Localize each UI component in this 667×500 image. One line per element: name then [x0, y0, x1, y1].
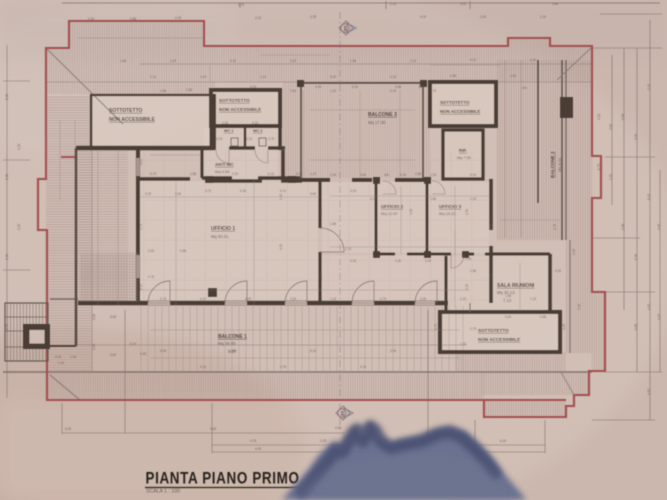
svg-text:SOTTOTETTO: SOTTOTETTO	[109, 108, 143, 114]
svg-text:0.30: 0.30	[634, 254, 638, 260]
svg-text:4.10: 4.10	[200, 365, 206, 369]
svg-text:2.10: 2.10	[345, 247, 351, 251]
svg-text:5.30: 5.30	[530, 58, 536, 62]
svg-text:3.25: 3.25	[350, 259, 356, 263]
svg-text:3.25: 3.25	[145, 192, 151, 196]
svg-text:4.45: 4.45	[647, 389, 651, 395]
svg-text:1.86: 1.86	[552, 2, 558, 6]
svg-text:2.10: 2.10	[410, 59, 416, 63]
svg-text:WC 2: WC 2	[253, 129, 263, 133]
svg-text:1.86: 1.86	[430, 197, 436, 201]
svg-text:1.06: 1.06	[70, 355, 76, 359]
svg-text:0.30: 0.30	[88, 17, 94, 21]
svg-text:4.10: 4.10	[252, 121, 258, 125]
svg-text:4.45: 4.45	[657, 314, 661, 320]
svg-text:0.88: 0.88	[395, 85, 401, 89]
svg-text:4.45: 4.45	[562, 324, 566, 330]
svg-text:4.10: 4.10	[420, 15, 426, 19]
svg-text:UFFICIO 1: UFFICIO 1	[211, 226, 235, 232]
svg-text:NON ACCESSIBILE: NON ACCESSIBILE	[478, 337, 520, 342]
svg-text:5.30: 5.30	[352, 85, 358, 89]
svg-text:0.75: 0.75	[280, 365, 286, 369]
svg-text:4.45: 4.45	[210, 427, 216, 431]
svg-text:3.60: 3.60	[310, 192, 316, 196]
svg-text:1.50: 1.50	[609, 174, 613, 180]
svg-text:1.15: 1.15	[330, 297, 336, 301]
svg-text:1.50: 1.50	[5, 254, 9, 260]
svg-text:3.60: 3.60	[505, 315, 511, 319]
svg-text:WC 1: WC 1	[224, 129, 234, 133]
svg-text:0.88: 0.88	[621, 114, 625, 120]
svg-text:0.30: 0.30	[58, 361, 64, 365]
svg-text:0.30: 0.30	[148, 249, 154, 253]
svg-text:2.75: 2.75	[268, 137, 274, 141]
svg-text:3.25: 3.25	[290, 297, 296, 301]
svg-text:1.86: 1.86	[160, 89, 166, 93]
svg-text:2.10: 2.10	[390, 2, 396, 6]
svg-text:0.88: 0.88	[634, 324, 638, 330]
svg-text:3.25: 3.25	[245, 297, 251, 301]
svg-text:3.60: 3.60	[360, 173, 366, 177]
svg-text:0.30: 0.30	[395, 259, 401, 263]
svg-text:3.60: 3.60	[510, 74, 516, 78]
svg-text:1.15: 1.15	[530, 297, 536, 301]
svg-text:4A: 4A	[522, 85, 527, 90]
svg-text:3.60: 3.60	[290, 89, 296, 93]
svg-text:BALCONE 2: BALCONE 2	[550, 151, 555, 178]
svg-text:SOTTOTETTO: SOTTOTETTO	[478, 328, 509, 333]
svg-text:Mq 34.00: Mq 34.00	[218, 341, 236, 346]
svg-text:4.10: 4.10	[470, 58, 476, 62]
svg-text:2.10: 2.10	[390, 75, 396, 79]
svg-text:0.75: 0.75	[160, 297, 166, 301]
svg-text:4.10: 4.10	[489, 274, 493, 280]
svg-text:3.25: 3.25	[465, 284, 469, 290]
svg-text:2.10: 2.10	[577, 304, 581, 310]
svg-text:3.60: 3.60	[609, 124, 613, 130]
svg-text:5.30: 5.30	[330, 75, 336, 79]
svg-text:2.00: 2.00	[92, 314, 96, 320]
svg-text:5.30: 5.30	[65, 427, 71, 431]
svg-text:SALA RIUNIONI: SALA RIUNIONI	[497, 283, 535, 289]
svg-text:5.30: 5.30	[230, 59, 236, 63]
svg-text:0.75: 0.75	[148, 275, 154, 279]
svg-text:1.86: 1.86	[350, 59, 356, 63]
svg-text:3.60: 3.60	[110, 353, 116, 357]
svg-text:RIP.: RIP.	[459, 148, 467, 153]
svg-text:1.20: 1.20	[279, 194, 283, 200]
svg-text:1: 1	[340, 411, 344, 418]
svg-text:1.20: 1.20	[310, 172, 316, 176]
svg-text:0.75: 0.75	[205, 189, 211, 193]
svg-text:4.45: 4.45	[335, 426, 341, 430]
svg-text:NON ACCESSIBILE: NON ACCESSIBILE	[109, 117, 156, 123]
svg-text:1.86: 1.86	[621, 224, 625, 230]
svg-text:2.00: 2.00	[555, 269, 561, 273]
svg-text:6.10: 6.10	[130, 342, 136, 346]
svg-text:1.86: 1.86	[120, 59, 126, 63]
svg-text:1.15: 1.15	[17, 224, 21, 230]
svg-text:4A: 4A	[384, 172, 389, 177]
svg-text:1.86: 1.86	[330, 222, 336, 226]
svg-text:6.10: 6.10	[647, 194, 651, 200]
svg-text:2.00: 2.00	[634, 134, 638, 140]
svg-text:5.30: 5.30	[5, 94, 9, 100]
svg-text:2.75: 2.75	[430, 89, 436, 93]
svg-text:SOTTOTETTO: SOTTOTETTO	[219, 98, 250, 103]
svg-text:PIANTA PIANO PRIMO: PIANTA PIANO PRIMO	[146, 469, 300, 488]
svg-text:2.10: 2.10	[647, 84, 651, 90]
svg-text:1.86: 1.86	[190, 172, 196, 176]
svg-text:2.75: 2.75	[434, 324, 438, 330]
svg-text:3.25: 3.25	[170, 59, 176, 63]
svg-text:3.25: 3.25	[216, 137, 222, 141]
svg-text:0.88: 0.88	[130, 17, 136, 21]
svg-text:UFFICIO 2: UFFICIO 2	[381, 204, 404, 209]
svg-text:4.10: 4.10	[370, 197, 376, 201]
svg-text:0.88: 0.88	[415, 172, 421, 176]
svg-text:Mq 12.97: Mq 12.97	[381, 211, 398, 216]
svg-text:3.60: 3.60	[110, 315, 116, 319]
svg-text:3.60: 3.60	[175, 192, 181, 196]
svg-text:ANTI WC: ANTI WC	[215, 162, 235, 167]
svg-text:6.10: 6.10	[296, 172, 302, 176]
svg-text:Mq 8.01: Mq 8.01	[557, 157, 562, 172]
svg-text:1.50: 1.50	[92, 344, 96, 350]
svg-text:3.25: 3.25	[350, 189, 356, 193]
svg-text:5.30: 5.30	[400, 173, 406, 177]
svg-text:1.86: 1.86	[505, 294, 511, 298]
svg-text:0.88: 0.88	[540, 315, 546, 319]
svg-text:4.45: 4.45	[647, 304, 651, 310]
svg-text:2.75: 2.75	[139, 224, 143, 230]
svg-text:0.30: 0.30	[319, 209, 323, 215]
svg-text:0.30: 0.30	[240, 189, 246, 193]
svg-text:2.00: 2.00	[222, 121, 228, 125]
svg-text:6.10: 6.10	[310, 349, 316, 353]
svg-text:4.05: 4.05	[55, 355, 61, 359]
svg-text:2.10: 2.10	[255, 16, 261, 20]
svg-text:Mq 7.06: Mq 7.06	[457, 156, 471, 160]
svg-text:2.10: 2.10	[150, 75, 156, 79]
svg-text:4.45: 4.45	[315, 85, 321, 89]
svg-text:4.10: 4.10	[390, 89, 396, 93]
svg-text:1.20: 1.20	[17, 144, 21, 150]
svg-text:4.10: 4.10	[409, 209, 413, 215]
svg-text:0.75: 0.75	[250, 439, 256, 443]
svg-text:Mq 4.00: Mq 4.00	[215, 169, 230, 174]
svg-text:4.45: 4.45	[140, 352, 146, 356]
svg-text:1.86: 1.86	[470, 269, 476, 273]
svg-text:0.88: 0.88	[450, 74, 456, 78]
svg-text:3.25: 3.25	[290, 59, 296, 63]
svg-text:Mq 16.22: Mq 16.22	[439, 211, 456, 216]
svg-text:0.88: 0.88	[180, 249, 186, 253]
svg-text:3.25: 3.25	[310, 15, 316, 19]
svg-text:0.75: 0.75	[5, 324, 9, 330]
svg-text:2.75: 2.75	[553, 224, 557, 230]
svg-text:2.00: 2.00	[465, 257, 471, 261]
svg-text:0.75: 0.75	[150, 172, 156, 176]
svg-text:2.00: 2.00	[330, 173, 336, 177]
svg-text:2.10: 2.10	[260, 75, 266, 79]
svg-text:6.10: 6.10	[280, 189, 286, 193]
svg-text:BALCONE 3: BALCONE 3	[368, 112, 397, 118]
svg-text:3.25: 3.25	[418, 85, 424, 89]
svg-text:2.00: 2.00	[390, 349, 396, 353]
svg-text:7.10: 7.10	[503, 298, 512, 303]
svg-text:Mq 50.01: Mq 50.01	[211, 234, 229, 239]
svg-text:2.00: 2.00	[480, 15, 486, 19]
svg-text:1.50: 1.50	[230, 349, 236, 353]
svg-text:0.75: 0.75	[597, 164, 601, 170]
svg-text:2.10: 2.10	[360, 365, 366, 369]
svg-text:4.45: 4.45	[200, 75, 206, 79]
svg-text:0.88: 0.88	[186, 88, 192, 92]
svg-text:4.10: 4.10	[279, 244, 283, 250]
svg-text:6.10: 6.10	[139, 284, 143, 290]
svg-text:6.10: 6.10	[200, 297, 206, 301]
svg-text:4.10: 4.10	[250, 85, 256, 89]
svg-text:3.25: 3.25	[320, 439, 326, 443]
svg-text:NON ACCESSIBILE: NON ACCESSIBILE	[219, 107, 261, 112]
svg-text:3.25: 3.25	[460, 2, 466, 6]
svg-text:2.00: 2.00	[160, 349, 166, 353]
svg-text:5.30: 5.30	[5, 174, 9, 180]
svg-text:Mq 17.30: Mq 17.30	[368, 120, 386, 125]
svg-text:1: 1	[343, 26, 347, 33]
svg-text:SOTTOTETTO: SOTTOTETTO	[440, 100, 470, 105]
svg-text:0.75: 0.75	[380, 297, 386, 301]
svg-text:4.10: 4.10	[597, 114, 601, 120]
svg-text:0.30: 0.30	[425, 259, 431, 263]
svg-text:2.10: 2.10	[246, 137, 252, 141]
svg-text:SCALA 1 : 100: SCALA 1 : 100	[146, 489, 180, 495]
svg-text:BALCONE 1: BALCONE 1	[218, 334, 247, 340]
svg-text:6.10: 6.10	[500, 439, 506, 443]
svg-text:2.10: 2.10	[319, 274, 323, 280]
svg-text:1.50: 1.50	[465, 209, 469, 215]
svg-text:4.45: 4.45	[255, 447, 261, 451]
svg-text:2.10: 2.10	[540, 15, 546, 19]
svg-text:2.75: 2.75	[238, 3, 244, 7]
svg-text:3.25: 3.25	[139, 159, 143, 165]
svg-text:6.10: 6.10	[268, 172, 274, 176]
svg-text:2.75: 2.75	[470, 327, 476, 331]
svg-text:4.45: 4.45	[572, 249, 576, 255]
svg-text:4.45: 4.45	[657, 224, 661, 230]
svg-text:1.20: 1.20	[330, 89, 336, 93]
svg-text:1.20: 1.20	[430, 173, 436, 177]
svg-text:0.30: 0.30	[232, 172, 238, 176]
svg-text:UFFICIO 3: UFFICIO 3	[439, 204, 462, 209]
svg-text:NON ACCESSIBILE: NON ACCESSIBILE	[440, 109, 480, 114]
svg-text:0.88: 0.88	[489, 224, 493, 230]
svg-text:2.10: 2.10	[460, 297, 466, 301]
svg-text:3.25: 3.25	[420, 297, 426, 301]
svg-text:5.30: 5.30	[470, 173, 476, 177]
svg-text:1.20: 1.20	[460, 342, 466, 346]
svg-text:1.20: 1.20	[470, 197, 476, 201]
svg-text:4.45: 4.45	[175, 16, 181, 20]
